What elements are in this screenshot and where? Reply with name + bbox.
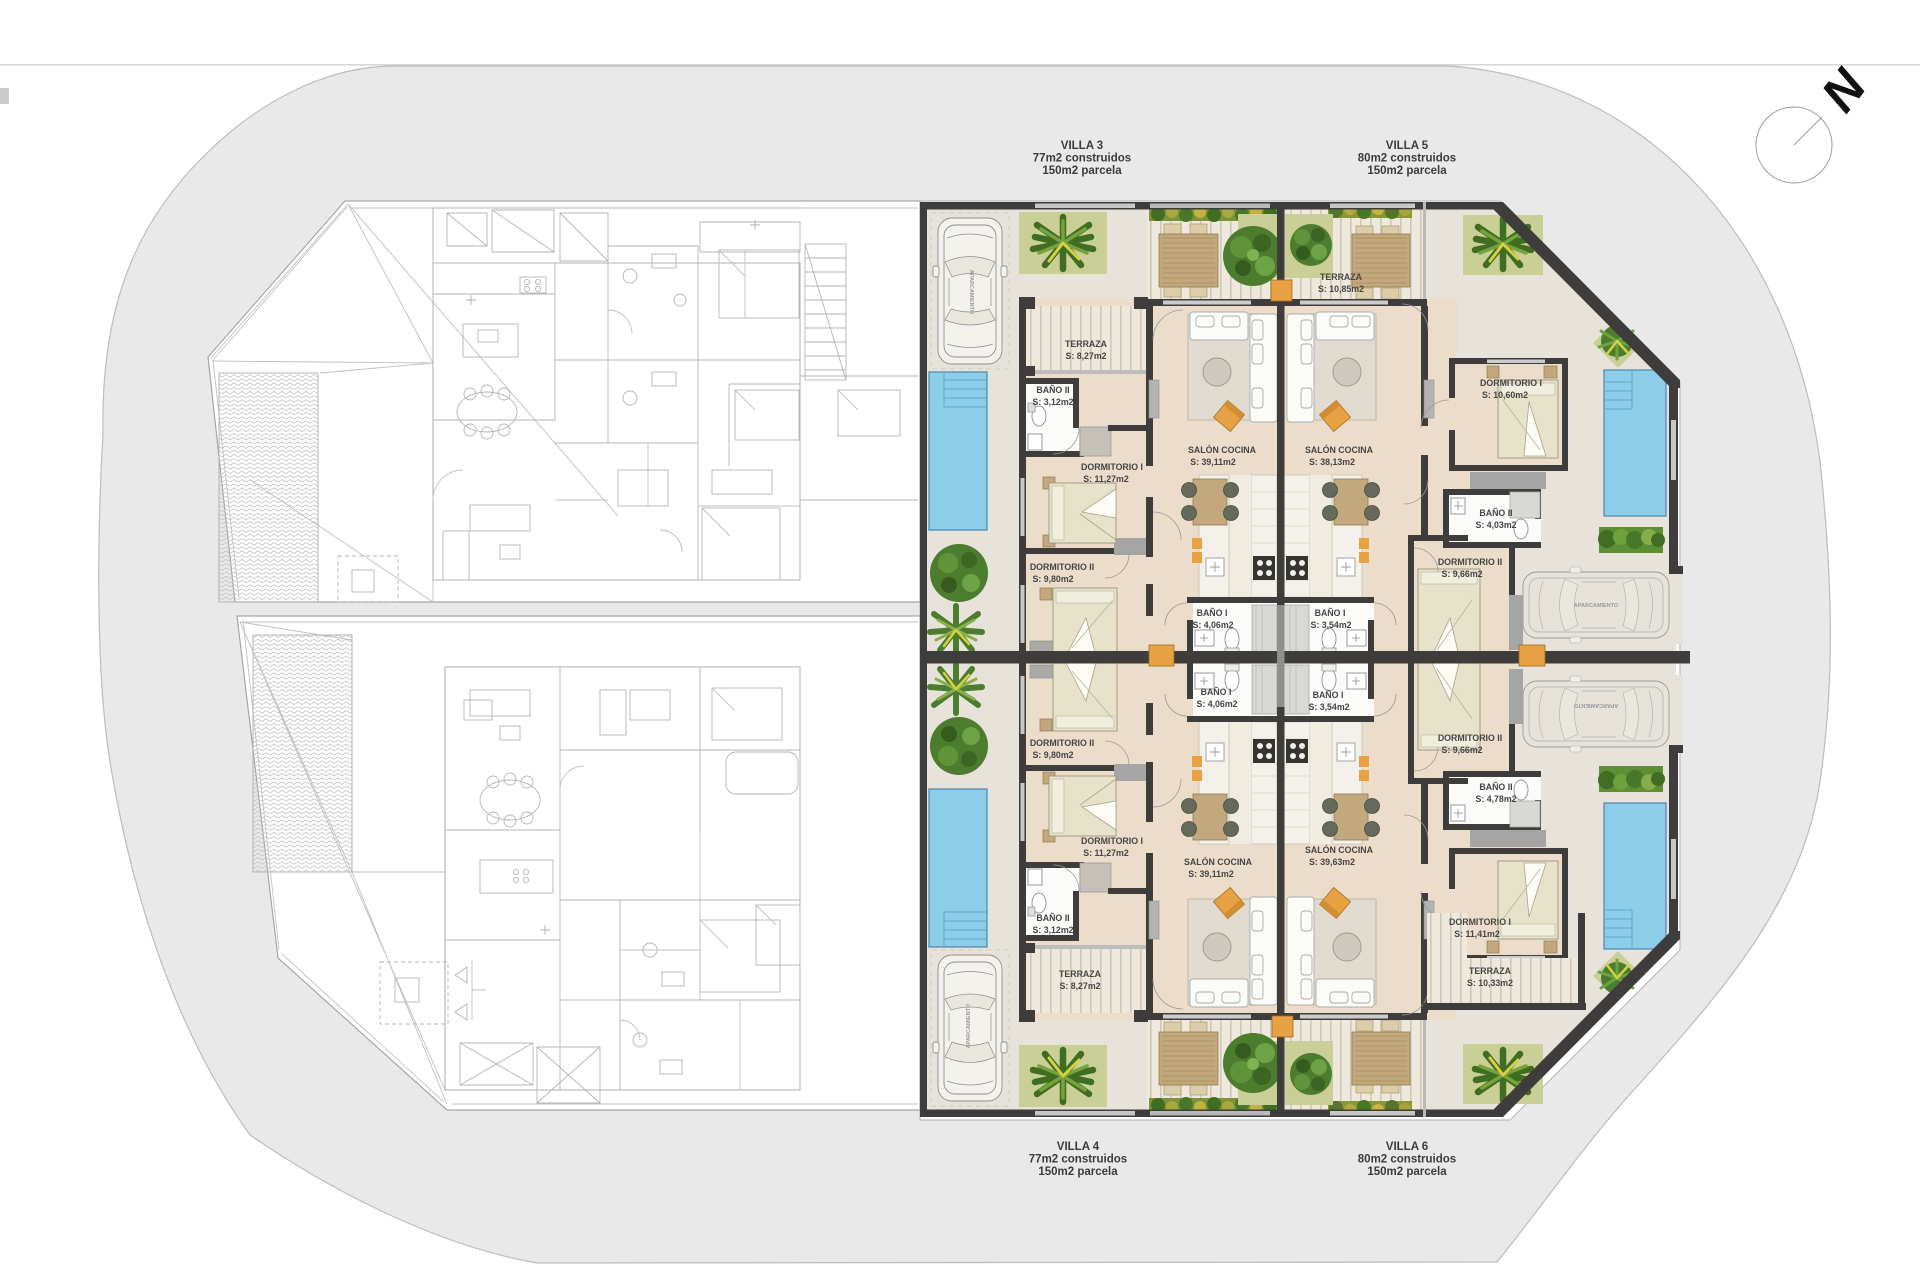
svg-text:S: 4,06m2: S: 4,06m2 xyxy=(1192,620,1233,630)
svg-text:80m2 construidos: 80m2 construidos xyxy=(1358,153,1456,165)
svg-text:S: 39,63m2: S: 39,63m2 xyxy=(1309,857,1355,867)
svg-text:S: 3,54m2: S: 3,54m2 xyxy=(1310,620,1351,630)
svg-text:SALÓN COCINA: SALÓN COCINA xyxy=(1305,444,1374,455)
svg-text:S: 9,80m2: S: 9,80m2 xyxy=(1032,750,1073,760)
svg-text:BAÑO I: BAÑO I xyxy=(1201,687,1232,697)
svg-text:TERRAZA: TERRAZA xyxy=(1469,966,1512,976)
svg-text:APARCAMIENTO: APARCAMIENTO xyxy=(968,270,974,315)
svg-text:S: 9,66m2: S: 9,66m2 xyxy=(1441,569,1482,579)
svg-text:DORMITORIO I: DORMITORIO I xyxy=(1081,836,1143,846)
svg-text:SALÓN COCINA: SALÓN COCINA xyxy=(1184,856,1253,867)
svg-text:SALÓN COCINA: SALÓN COCINA xyxy=(1188,444,1257,455)
svg-text:VILLA 3: VILLA 3 xyxy=(1061,140,1103,152)
svg-text:VILLA 4: VILLA 4 xyxy=(1057,1141,1100,1153)
svg-text:APARCAMIENTO: APARCAMIENTO xyxy=(1574,603,1619,609)
svg-text:150m2 parcela: 150m2 parcela xyxy=(1367,1166,1447,1178)
svg-text:DORMITORIO II: DORMITORIO II xyxy=(1438,557,1502,567)
svg-text:150m2 parcela: 150m2 parcela xyxy=(1367,165,1447,177)
svg-text:S: 4,06m2: S: 4,06m2 xyxy=(1196,699,1237,709)
svg-text:BAÑO I: BAÑO I xyxy=(1313,690,1344,700)
svg-text:S: 39,11m2: S: 39,11m2 xyxy=(1190,457,1236,467)
svg-text:S: 3,12m2: S: 3,12m2 xyxy=(1032,397,1073,407)
svg-text:BAÑO I: BAÑO I xyxy=(1315,608,1346,618)
svg-text:S: 3,54m2: S: 3,54m2 xyxy=(1308,702,1349,712)
svg-text:S: 9,66m2: S: 9,66m2 xyxy=(1441,745,1482,755)
svg-text:77m2 construidos: 77m2 construidos xyxy=(1029,1154,1127,1166)
svg-text:S: 4,03m2: S: 4,03m2 xyxy=(1475,520,1516,530)
svg-text:S: 38,13m2: S: 38,13m2 xyxy=(1309,457,1355,467)
svg-text:S: 4,78m2: S: 4,78m2 xyxy=(1475,794,1516,804)
svg-text:150m2 parcela: 150m2 parcela xyxy=(1038,1166,1118,1178)
svg-text:S: 11,27m2: S: 11,27m2 xyxy=(1083,848,1129,858)
svg-text:77m2 construidos: 77m2 construidos xyxy=(1033,153,1131,165)
svg-text:150m2 parcela: 150m2 parcela xyxy=(1042,165,1122,177)
svg-text:DORMITORIO I: DORMITORIO I xyxy=(1449,917,1511,927)
svg-text:DORMITORIO II: DORMITORIO II xyxy=(1438,733,1502,743)
svg-text:TERRAZA: TERRAZA xyxy=(1065,339,1108,349)
svg-text:BAÑO II: BAÑO II xyxy=(1479,782,1512,792)
svg-text:BAÑO II: BAÑO II xyxy=(1036,385,1069,395)
svg-text:S: 11,27m2: S: 11,27m2 xyxy=(1083,474,1129,484)
svg-text:S: 39,11m2: S: 39,11m2 xyxy=(1188,869,1234,879)
svg-text:S: 11,41m2: S: 11,41m2 xyxy=(1454,929,1500,939)
svg-text:DORMITORIO II: DORMITORIO II xyxy=(1030,562,1094,572)
svg-text:80m2 construidos: 80m2 construidos xyxy=(1358,1154,1456,1166)
svg-text:S: 9,80m2: S: 9,80m2 xyxy=(1032,574,1073,584)
svg-text:VILLA 5: VILLA 5 xyxy=(1386,140,1429,152)
svg-text:APARCAMIENTO: APARCAMIENTO xyxy=(1573,702,1618,708)
svg-text:TERRAZA: TERRAZA xyxy=(1320,272,1363,282)
svg-text:S: 3,12m2: S: 3,12m2 xyxy=(1032,925,1073,935)
svg-text:SALÓN COCINA: SALÓN COCINA xyxy=(1305,844,1374,855)
svg-text:TERRAZA: TERRAZA xyxy=(1059,969,1102,979)
svg-text:DORMITORIO II: DORMITORIO II xyxy=(1030,738,1094,748)
svg-text:DORMITORIO I: DORMITORIO I xyxy=(1480,378,1542,388)
svg-text:BAÑO II: BAÑO II xyxy=(1036,913,1069,923)
svg-text:S: 10,60m2: S: 10,60m2 xyxy=(1482,390,1528,400)
svg-text:S: 10,85m2: S: 10,85m2 xyxy=(1318,284,1364,294)
svg-text:S: 8,27m2: S: 8,27m2 xyxy=(1059,981,1100,991)
svg-text:BAÑO II: BAÑO II xyxy=(1479,508,1512,518)
svg-text:BAÑO I: BAÑO I xyxy=(1197,608,1228,618)
svg-text:DORMITORIO I: DORMITORIO I xyxy=(1081,462,1143,472)
svg-text:VILLA 6: VILLA 6 xyxy=(1386,1141,1428,1153)
svg-text:S: 8,27m2: S: 8,27m2 xyxy=(1065,351,1106,361)
svg-text:S: 10,33m2: S: 10,33m2 xyxy=(1467,978,1513,988)
svg-text:APARCAMIENTO: APARCAMIENTO xyxy=(966,1003,972,1048)
